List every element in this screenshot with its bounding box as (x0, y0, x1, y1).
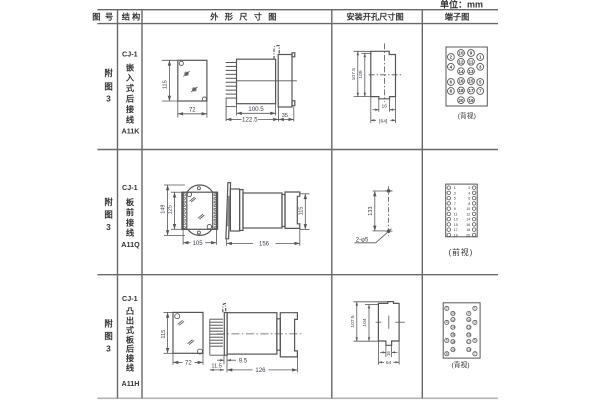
svg-text:板: 板 (126, 334, 135, 344)
svg-text:115: 115 (162, 80, 168, 89)
svg-text:20: 20 (459, 98, 464, 103)
svg-text:17: 17 (454, 228, 458, 232)
svg-text:100.5: 100.5 (248, 106, 264, 113)
svg-text:5: 5 (474, 339, 476, 343)
svg-text:9: 9 (468, 312, 470, 316)
svg-text:107.5: 107.5 (350, 315, 356, 328)
svg-text:A11K: A11K (122, 126, 141, 135)
svg-text:16: 16 (386, 351, 391, 356)
svg-text:图: 图 (104, 331, 112, 341)
svg-text:线: 线 (126, 363, 135, 373)
svg-text:凸: 凸 (126, 307, 134, 316)
svg-text:入: 入 (125, 74, 135, 83)
svg-text:后: 后 (126, 94, 134, 104)
svg-text:35: 35 (282, 113, 288, 119)
svg-text:A11Q: A11Q (121, 240, 140, 249)
svg-text:14: 14 (459, 69, 464, 74)
svg-text:图: 图 (104, 209, 112, 219)
svg-text:122.5: 122.5 (242, 117, 258, 124)
svg-text:(前视): (前视) (449, 247, 474, 257)
svg-text:156: 156 (259, 242, 270, 248)
svg-text:3: 3 (106, 222, 111, 232)
svg-text:107.5: 107.5 (351, 68, 357, 81)
svg-text:4: 4 (468, 191, 470, 195)
svg-text:14: 14 (451, 325, 455, 329)
svg-text:8: 8 (468, 202, 470, 206)
svg-text:安装开孔尺寸图: 安装开孔尺寸图 (346, 12, 403, 22)
svg-text:前: 前 (126, 207, 134, 217)
svg-text:16: 16 (466, 223, 470, 227)
svg-text:5: 5 (454, 197, 456, 201)
svg-text:12: 12 (466, 212, 470, 216)
svg-text:12: 12 (451, 318, 455, 322)
svg-text:11: 11 (469, 59, 474, 64)
svg-text:10: 10 (451, 312, 455, 316)
svg-text:125: 125 (167, 205, 173, 214)
svg-text:17: 17 (469, 88, 474, 93)
svg-text:19: 19 (467, 348, 471, 352)
svg-text:11: 11 (454, 212, 458, 216)
svg-text:19: 19 (469, 98, 474, 103)
svg-text:17: 17 (467, 340, 471, 344)
svg-text:2: 2 (446, 307, 448, 311)
svg-text:单位：mm: 单位：mm (440, 0, 483, 10)
svg-text:接: 接 (126, 104, 135, 114)
svg-text:6: 6 (446, 339, 448, 343)
svg-text:105: 105 (193, 241, 204, 247)
svg-text:结构: 结构 (122, 12, 142, 22)
svg-text:64: 64 (386, 360, 392, 366)
svg-text:133: 133 (368, 207, 374, 216)
svg-text:附: 附 (104, 68, 113, 78)
svg-text:11: 11 (467, 318, 471, 322)
svg-text:(背视): (背视) (451, 360, 469, 369)
svg-text:6: 6 (468, 197, 470, 201)
svg-text:外形尺寸图: 外形尺寸图 (209, 12, 282, 22)
svg-text:13: 13 (467, 325, 471, 329)
svg-text:9: 9 (454, 207, 456, 211)
svg-text:7: 7 (454, 202, 456, 206)
svg-text:端子图: 端子图 (445, 12, 470, 22)
svg-text:3: 3 (474, 321, 476, 325)
svg-text:(背视): (背视) (458, 111, 476, 120)
svg-text:11.5: 11.5 (211, 364, 221, 370)
svg-text:16: 16 (381, 103, 387, 109)
svg-text:8: 8 (446, 352, 448, 356)
svg-text:18: 18 (451, 340, 455, 344)
svg-text:12: 12 (459, 59, 464, 64)
svg-text:72: 72 (189, 107, 196, 113)
svg-text:CJ-1: CJ-1 (122, 294, 138, 303)
svg-text:CJ-1: CJ-1 (122, 183, 138, 192)
svg-text:[64]: [64] (379, 118, 388, 124)
svg-text:嵌: 嵌 (126, 62, 135, 72)
svg-text:16: 16 (459, 79, 464, 84)
svg-text:附: 附 (104, 319, 113, 329)
svg-text:16: 16 (451, 333, 455, 337)
svg-text:15: 15 (469, 79, 474, 84)
svg-text:72: 72 (185, 361, 192, 367)
svg-text:图: 图 (104, 81, 112, 91)
svg-text:线: 线 (126, 114, 135, 124)
svg-text:18: 18 (466, 228, 470, 232)
svg-text:115: 115 (298, 207, 304, 216)
svg-text:线: 线 (126, 228, 135, 238)
svg-text:13: 13 (469, 69, 474, 74)
svg-text:3: 3 (106, 343, 111, 353)
svg-text:接: 接 (126, 217, 135, 227)
svg-text:出: 出 (126, 315, 134, 325)
svg-text:105: 105 (358, 70, 364, 78)
svg-text:14: 14 (466, 218, 470, 222)
svg-text:3: 3 (106, 93, 111, 103)
svg-text:7: 7 (474, 352, 476, 356)
svg-text:A11H: A11H (122, 379, 140, 388)
svg-text:10: 10 (459, 51, 464, 56)
svg-text:115: 115 (161, 330, 167, 339)
svg-text:1: 1 (474, 307, 476, 311)
svg-text:104: 104 (362, 318, 368, 326)
svg-text:15: 15 (454, 223, 458, 227)
svg-text:式: 式 (126, 325, 135, 335)
svg-text:20: 20 (466, 233, 470, 237)
svg-text:附: 附 (104, 197, 113, 207)
svg-text:2: 2 (468, 186, 470, 190)
svg-text:18: 18 (459, 88, 464, 93)
svg-text:15: 15 (467, 333, 471, 337)
svg-text:接: 接 (126, 353, 135, 363)
svg-text:4: 4 (446, 321, 448, 325)
svg-text:126: 126 (255, 368, 266, 374)
svg-text:后: 后 (126, 344, 134, 354)
svg-text:13: 13 (454, 218, 458, 222)
svg-text:149: 149 (160, 205, 166, 214)
svg-text:9.5: 9.5 (239, 359, 248, 365)
svg-text:1: 1 (454, 186, 456, 190)
svg-text:式: 式 (126, 83, 135, 93)
svg-text:10: 10 (466, 207, 470, 211)
svg-text:图号: 图号 (92, 13, 117, 22)
svg-text:板: 板 (126, 197, 135, 207)
svg-text:20: 20 (451, 348, 455, 352)
svg-text:CJ-1: CJ-1 (122, 50, 138, 59)
svg-text:3: 3 (454, 191, 456, 195)
svg-text:19: 19 (454, 233, 458, 237)
